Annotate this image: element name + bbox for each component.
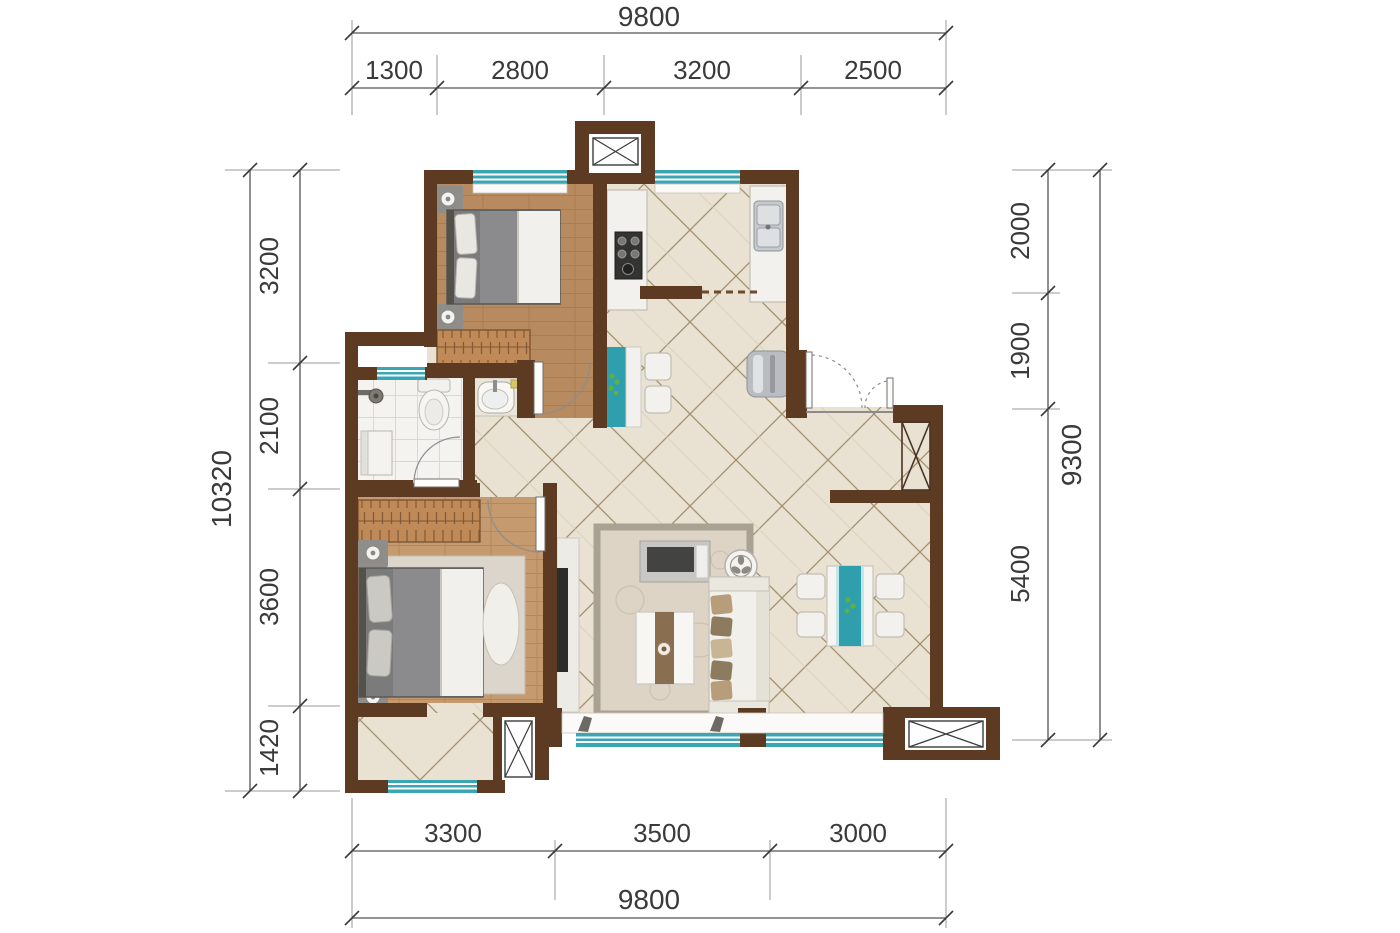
dim-label: 2100 bbox=[254, 397, 284, 455]
dining-chair bbox=[876, 612, 904, 637]
dining-table bbox=[827, 566, 873, 646]
washing-machine-icon bbox=[361, 431, 392, 475]
floor-plan-canvas: 9800 1300 2800 3200 2500 3300 3500 3000 … bbox=[0, 0, 1400, 933]
dim-label: 5400 bbox=[1005, 545, 1035, 603]
dim-label-right-total: 9300 bbox=[1056, 424, 1087, 486]
dim-label: 2800 bbox=[491, 55, 549, 85]
balcony-shaft-icon bbox=[502, 717, 535, 780]
dim-label: 3200 bbox=[673, 55, 731, 85]
dim-label: 2000 bbox=[1005, 202, 1035, 260]
dim-bottom: 3300 3500 3000 9800 bbox=[345, 798, 953, 928]
bathroom-window bbox=[377, 367, 425, 380]
dim-label: 3000 bbox=[829, 818, 887, 848]
floor-plan-page: 9800 1300 2800 3200 2500 3300 3500 3000 … bbox=[0, 0, 1400, 933]
bedroom1-window bbox=[473, 170, 567, 193]
living-room-south-window bbox=[562, 713, 883, 747]
water-heater-icon bbox=[747, 351, 790, 397]
dining-chair bbox=[876, 574, 904, 599]
dim-label-left-total: 10320 bbox=[206, 450, 237, 528]
tv-icon bbox=[556, 568, 568, 672]
oval-rug bbox=[483, 583, 519, 665]
sofa bbox=[709, 577, 769, 715]
dim-label: 3500 bbox=[633, 818, 691, 848]
dim-label: 1300 bbox=[365, 55, 423, 85]
entry-door-swing bbox=[806, 352, 893, 412]
dim-label: 1900 bbox=[1005, 322, 1035, 380]
balcony-window bbox=[388, 780, 477, 793]
dim-label: 3300 bbox=[424, 818, 482, 848]
flue-shaft-icon bbox=[589, 134, 641, 173]
dim-label: 3200 bbox=[254, 237, 284, 295]
sofa-pillows bbox=[710, 594, 733, 701]
dim-right: 2000 1900 5400 9300 bbox=[1005, 163, 1112, 747]
dim-left: 10320 3200 2100 3600 1420 bbox=[206, 163, 340, 798]
dim-top: 9800 1300 2800 3200 2500 bbox=[345, 1, 953, 115]
kitchen-window bbox=[655, 170, 740, 193]
bed bbox=[359, 568, 483, 697]
dim-label: 2500 bbox=[844, 55, 902, 85]
dim-label: 1420 bbox=[254, 719, 284, 777]
bar-chair bbox=[645, 353, 671, 380]
bar-chair bbox=[645, 386, 671, 413]
bed bbox=[447, 210, 560, 304]
coffee-table bbox=[636, 612, 694, 684]
bay-window bbox=[905, 718, 986, 750]
toilet-icon bbox=[418, 379, 450, 430]
dim-label: 3600 bbox=[254, 568, 284, 626]
hall-basin bbox=[473, 378, 520, 416]
dining-chair bbox=[797, 574, 825, 599]
media-console bbox=[640, 541, 710, 582]
stove-icon bbox=[615, 232, 642, 279]
dim-label-top-total: 9800 bbox=[618, 1, 680, 32]
dining-chair bbox=[797, 612, 825, 637]
sink-icon bbox=[754, 201, 783, 251]
tv-console bbox=[556, 538, 579, 712]
dim-label-bottom-total: 9800 bbox=[618, 884, 680, 915]
balcony-floor bbox=[358, 713, 493, 783]
